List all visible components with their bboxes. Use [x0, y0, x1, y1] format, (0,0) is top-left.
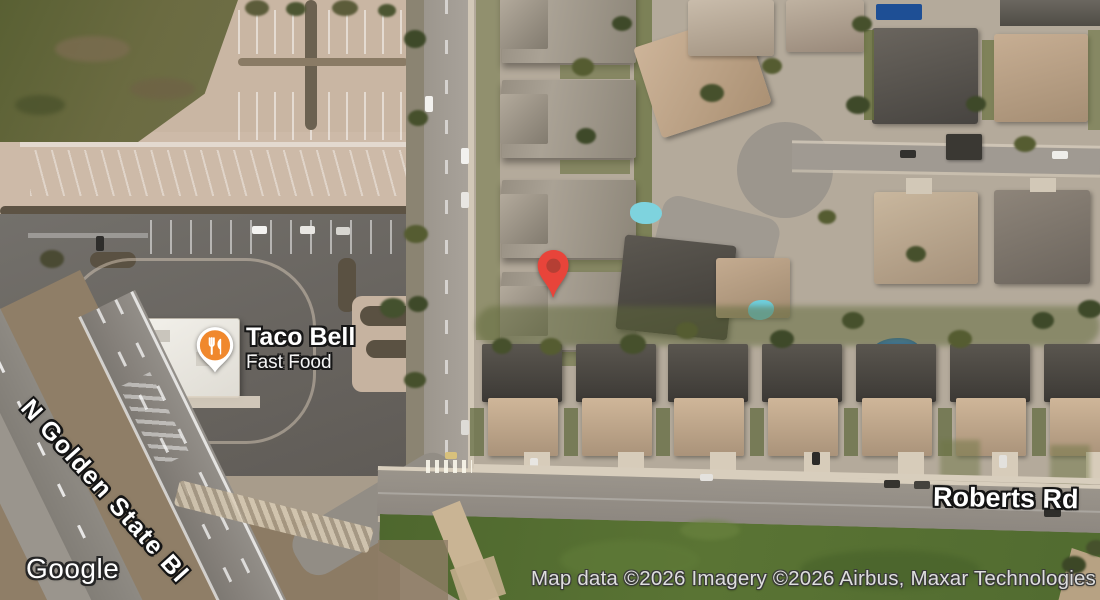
- vehicle: [252, 226, 267, 234]
- dirt-patch: [130, 78, 195, 100]
- house-roof: [500, 0, 548, 49]
- google-logo[interactable]: Google: [26, 553, 119, 585]
- house-roof: [994, 190, 1090, 284]
- tree: [1032, 312, 1054, 329]
- map-attribution: Map data ©2026 Imagery ©2026 Airbus, Max…: [531, 567, 1096, 591]
- house-roof: [872, 28, 978, 124]
- vehicle: [914, 481, 930, 489]
- lawn: [844, 408, 858, 456]
- tree: [572, 58, 594, 76]
- tree: [540, 338, 562, 355]
- parking-stripes: [30, 150, 414, 196]
- house-roof: [862, 398, 932, 456]
- vehicle: [96, 236, 104, 251]
- poi-label: Taco Bell Fast Food: [246, 324, 355, 374]
- tree: [612, 16, 632, 31]
- tree: [818, 210, 836, 224]
- lawn: [1088, 30, 1100, 130]
- vehicle: [461, 192, 469, 208]
- house-roof: [762, 344, 842, 402]
- tree: [1086, 540, 1100, 556]
- tree: [245, 0, 269, 16]
- lawn: [560, 65, 630, 79]
- vehicle: [461, 148, 469, 164]
- house-roof: [488, 398, 558, 456]
- tree: [620, 334, 646, 354]
- tree: [966, 96, 986, 112]
- restaurant-pin-icon: [192, 326, 238, 380]
- vehicle: [812, 452, 820, 465]
- house-roof: [674, 398, 744, 456]
- parking-stripes: [238, 10, 408, 54]
- house-roof: [856, 344, 936, 402]
- pool: [876, 4, 922, 20]
- tree: [408, 296, 428, 312]
- house-roof: [950, 344, 1030, 402]
- tree: [286, 2, 306, 16]
- lawn: [476, 0, 500, 340]
- lawn: [560, 160, 630, 174]
- poi-taco-bell[interactable]: Taco Bell Fast Food: [192, 326, 355, 380]
- tree: [846, 96, 870, 114]
- tree: [404, 30, 426, 48]
- house-roof: [668, 344, 748, 402]
- house-roof: [576, 344, 656, 402]
- house-roof: [1044, 344, 1100, 402]
- tree: [408, 110, 428, 126]
- lawn: [470, 408, 484, 456]
- dirt-patch: [378, 540, 448, 600]
- location-pin-icon[interactable]: [537, 249, 570, 299]
- poi-title: Taco Bell: [246, 324, 355, 350]
- tree: [842, 312, 864, 329]
- house-roof: [874, 192, 978, 284]
- house-roof: [500, 94, 548, 144]
- tree: [378, 4, 396, 17]
- tree: [380, 298, 406, 318]
- crosswalk: [426, 460, 472, 473]
- tree: [700, 84, 724, 102]
- tree: [404, 225, 428, 243]
- curb-ramp: [445, 452, 457, 459]
- pool: [630, 202, 662, 224]
- landscape-strip: [238, 58, 408, 66]
- house-roof: [1000, 0, 1100, 26]
- tree: [1078, 300, 1100, 318]
- lane-line: [445, 0, 448, 470]
- house-roof: [994, 34, 1088, 122]
- driveway: [906, 178, 932, 194]
- vehicle: [999, 455, 1007, 468]
- driveway: [1030, 178, 1056, 192]
- tree: [906, 246, 926, 262]
- lawn: [656, 408, 670, 456]
- house-roof: [688, 0, 774, 56]
- tree: [770, 330, 794, 348]
- tree: [332, 0, 358, 16]
- vehicle: [336, 227, 350, 235]
- lawn: [564, 408, 578, 456]
- vehicle: [425, 96, 433, 112]
- poi-subtitle: Fast Food: [246, 352, 355, 374]
- tree: [576, 128, 596, 144]
- house-roof: [582, 398, 652, 456]
- road-label-roberts-rd: Roberts Rd: [933, 482, 1079, 516]
- house-roof: [500, 194, 548, 244]
- map-viewport[interactable]: N Golden State Bl Roberts Rd Taco Bell F…: [0, 0, 1100, 600]
- house-roof: [946, 134, 982, 160]
- tree: [40, 250, 64, 268]
- tree: [1014, 136, 1036, 152]
- lawn: [1032, 408, 1046, 456]
- grass-patch: [15, 95, 65, 115]
- vehicle: [300, 226, 315, 234]
- tree: [762, 58, 782, 74]
- parking-stripes: [28, 233, 148, 238]
- tree: [676, 322, 698, 339]
- lawn: [750, 408, 764, 456]
- vehicle: [884, 480, 900, 488]
- tree: [852, 16, 872, 32]
- sidewalk: [468, 0, 474, 470]
- tree: [492, 338, 512, 354]
- dirt-patch: [55, 36, 130, 62]
- tree: [948, 330, 972, 348]
- vehicle: [461, 420, 469, 435]
- house-roof: [768, 398, 838, 456]
- vehicle: [900, 150, 916, 158]
- parking-stripes: [20, 142, 422, 147]
- parking-stripes: [150, 220, 422, 254]
- parking-stripes: [238, 92, 408, 140]
- vehicle: [1052, 151, 1068, 159]
- grass-patch: [680, 520, 740, 540]
- vehicle: [700, 474, 713, 481]
- tree: [404, 372, 426, 388]
